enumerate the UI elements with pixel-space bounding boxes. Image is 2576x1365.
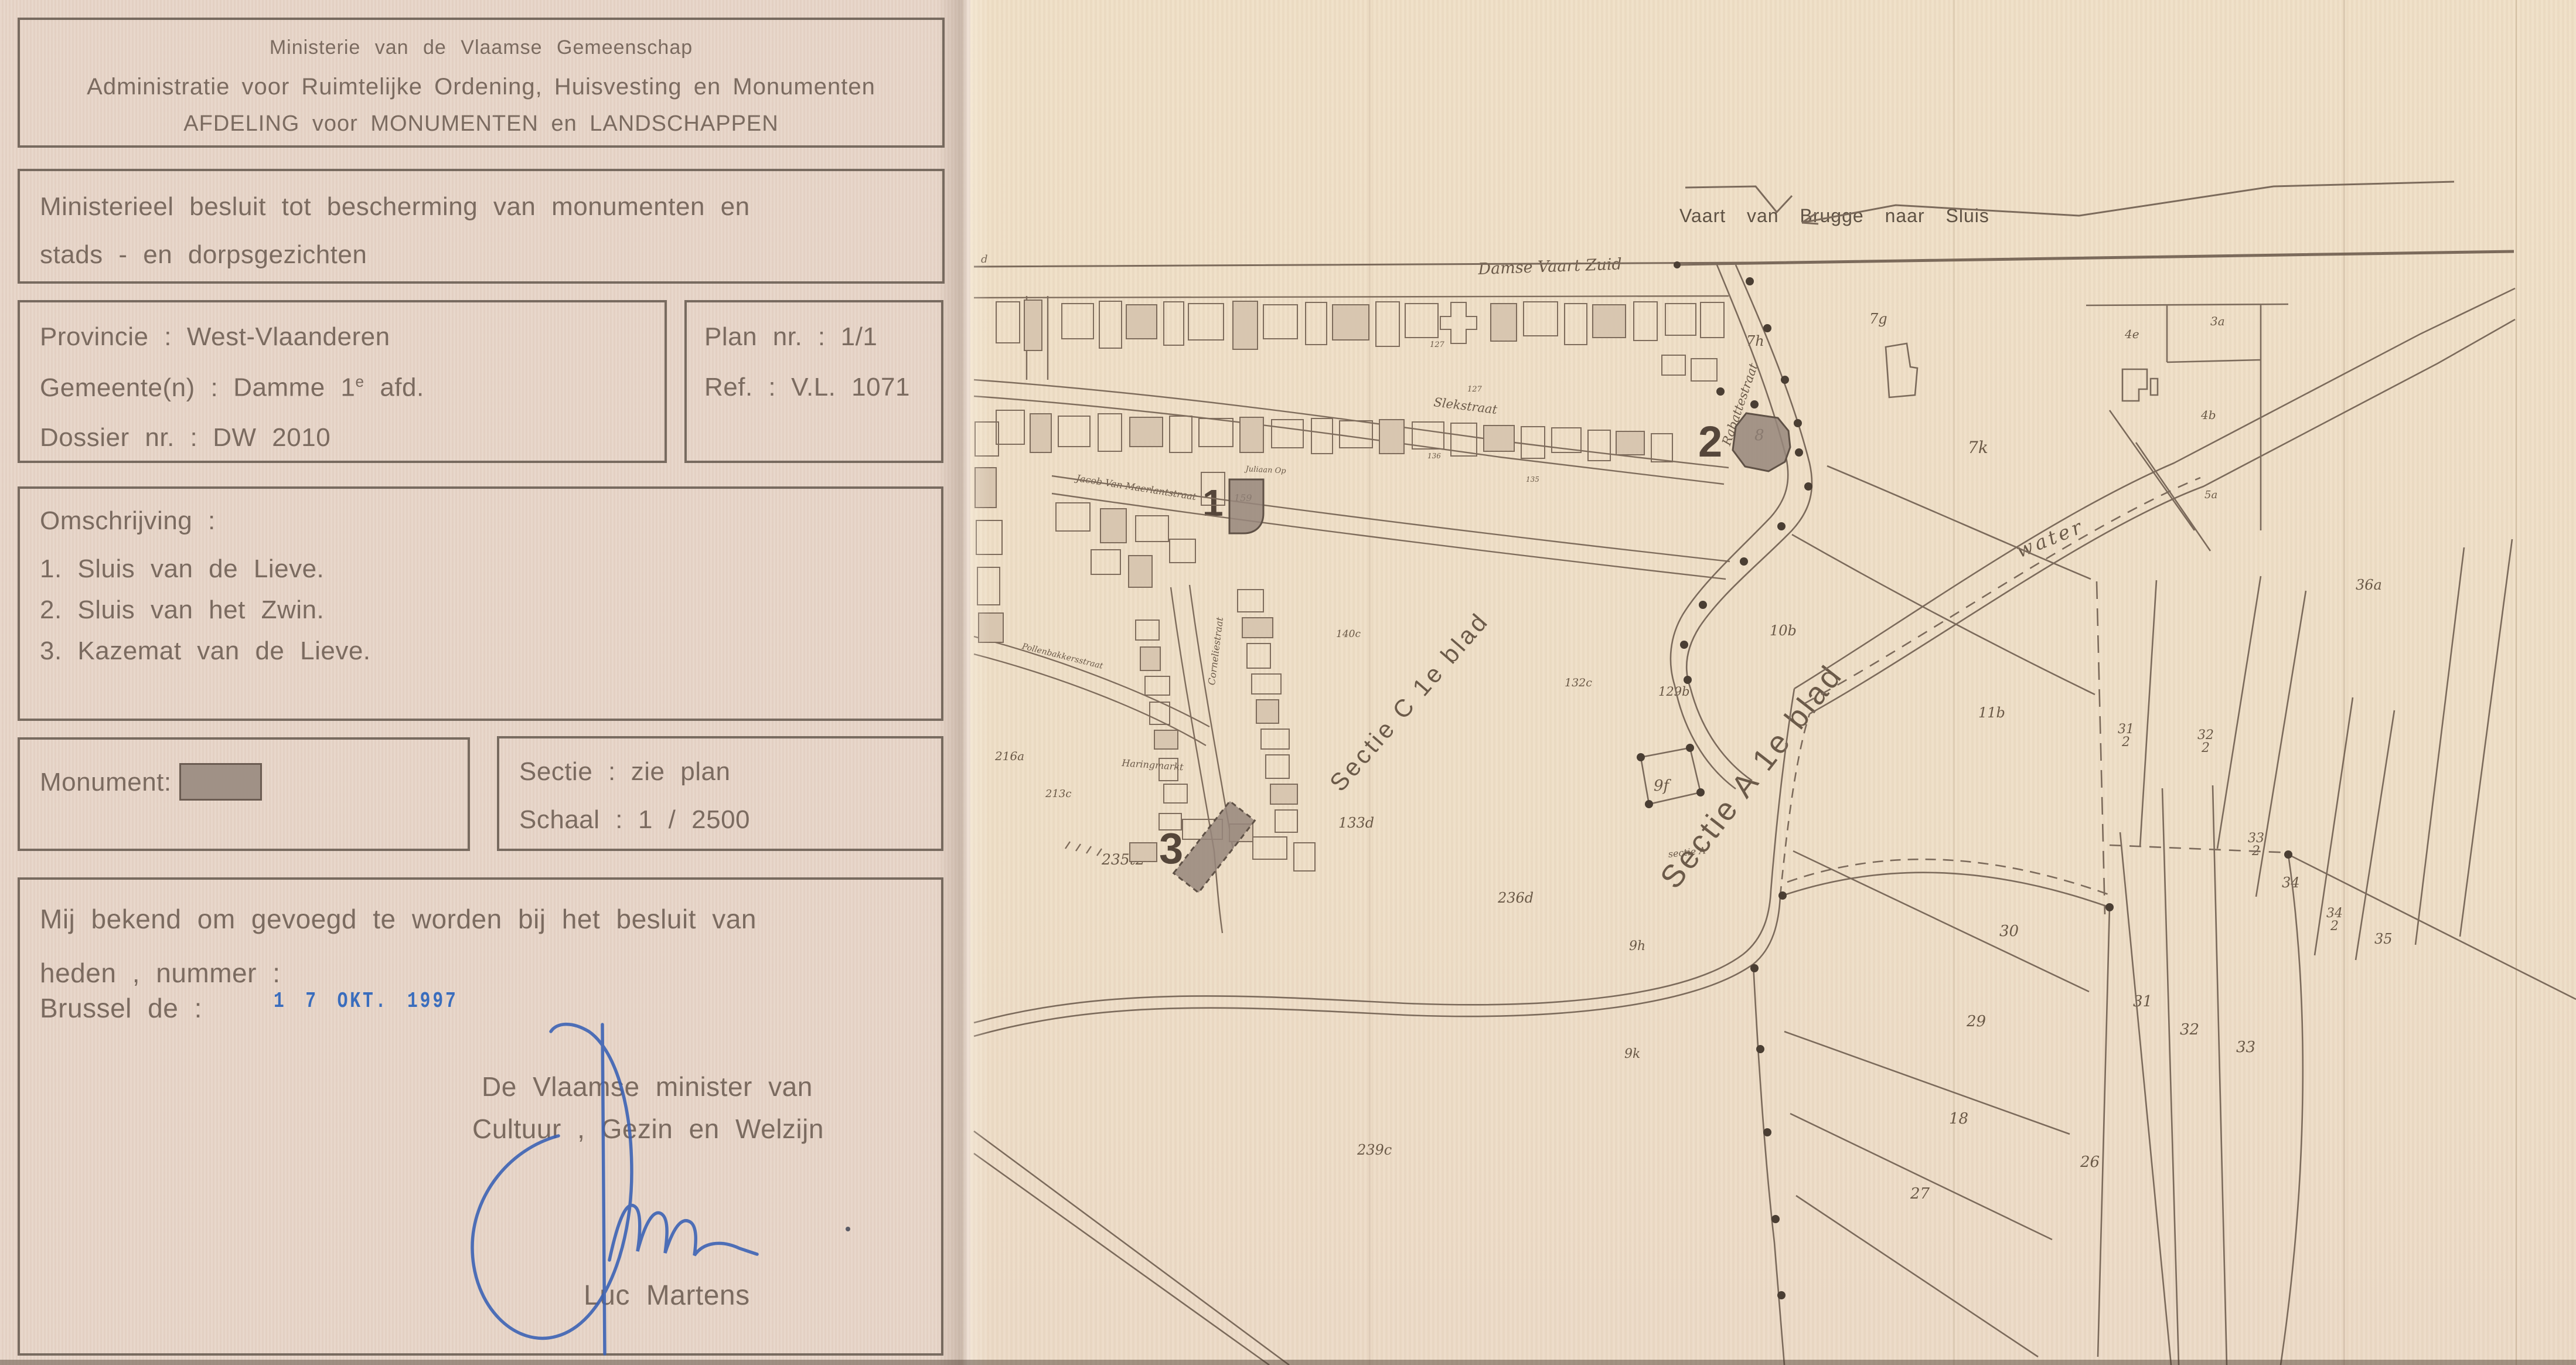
parcel-label: 10b [1770, 624, 1797, 638]
parcel-label: 33 2 [2248, 832, 2264, 859]
parcel-label: 7g [1869, 312, 1887, 326]
parcel-label: 32 2 [2197, 729, 2214, 755]
parcel-label: 7h [1746, 334, 1764, 348]
street-juliaan-op: Juliaan Op [1245, 465, 1286, 475]
street-rabattestraat: Rabattestraat [1720, 362, 1760, 447]
street-damse-vaart-zuid: Damse Vaart Zuid [1478, 256, 1622, 277]
parcel-label: 129b [1658, 686, 1690, 698]
parcel-label: 5a [2204, 490, 2217, 501]
parcel-label: 34 [2282, 876, 2300, 890]
section-a-label: Sectie A 1e blad [1655, 659, 1849, 894]
parcel-label: 31 2 [2118, 723, 2134, 750]
parcel-label: 216a [995, 750, 1024, 762]
parcel-label: 127 [1467, 386, 1482, 393]
monument-number-2: 2 [1698, 420, 1722, 464]
parcel-label: 9k [1624, 1048, 1640, 1061]
parcel-label: 4b [2201, 409, 2216, 421]
water-label: water [2013, 516, 2087, 561]
map-label-layer: Vaart van Brugge naar SluisDamse Vaart Z… [0, 0, 2576, 1365]
street-corneliestraat: Corneliestraat [1207, 617, 1225, 686]
parcel-label: 4e [2125, 328, 2139, 340]
parcel-label-monument-2: 8 [1754, 428, 1764, 444]
parcel-label: 29 [1967, 1014, 1986, 1030]
parcel-label-monument-1: 159 [1234, 493, 1252, 503]
parcel-label: 30 [1999, 924, 2019, 939]
street-slekstraat: Slekstraat [1433, 396, 1498, 417]
parcel-label: 140c [1336, 629, 1361, 639]
parcel-label: d [981, 254, 988, 265]
parcel-label: 27 [1910, 1186, 1930, 1202]
parcel-label: 132c [1565, 678, 1592, 689]
parcel-label: 26 [2080, 1155, 2100, 1170]
parcel-label: 239c [1357, 1143, 1392, 1157]
parcel-label: 235t2 [1102, 852, 1145, 867]
parcel-label: 135 [1526, 476, 1539, 483]
street-pollenbakkersstraat: Pollenbakkersstraat [1021, 642, 1104, 670]
sectie-a-small-label: sectie A [1668, 846, 1706, 859]
parcel-label: 213c [1045, 789, 1071, 799]
parcel-label: 34 2 [2326, 907, 2343, 934]
street-haringmarkt: Haringmarkt [1122, 758, 1184, 772]
parcel-label: 18 [1949, 1111, 1968, 1127]
parcel-label: 9h [1629, 940, 1645, 953]
parcel-label: 31 [2133, 994, 2152, 1010]
scan-edge [0, 1360, 2576, 1365]
monument-number-1: 1 [1202, 484, 1224, 522]
monument-number-3: 3 [1159, 826, 1183, 870]
parcel-label: 32 [2180, 1022, 2199, 1038]
parcel-label: 33 [2236, 1040, 2255, 1056]
parcel-label: 7k [1968, 440, 1988, 457]
street-jacob-van-maerlantstraat: Jacob Van Maerlantstraat [1075, 474, 1197, 502]
section-c-label: Sectie C 1e blad [1326, 608, 1494, 796]
parcel-label: 9f [1654, 778, 1669, 794]
parcel-label: 136 [1427, 452, 1441, 459]
parcel-label: 236d [1498, 891, 1534, 905]
parcel-label: 11b [1978, 706, 2005, 720]
parcel-label: 36a [2356, 578, 2382, 592]
canal-name-label: Vaart van Brugge naar Sluis [1679, 206, 1989, 226]
parcel-label: 35 [2374, 932, 2393, 946]
parcel-label: 3a [2210, 315, 2225, 327]
parcel-label: 133d [1338, 816, 1374, 830]
parcel-label: 127 [1430, 341, 1444, 349]
